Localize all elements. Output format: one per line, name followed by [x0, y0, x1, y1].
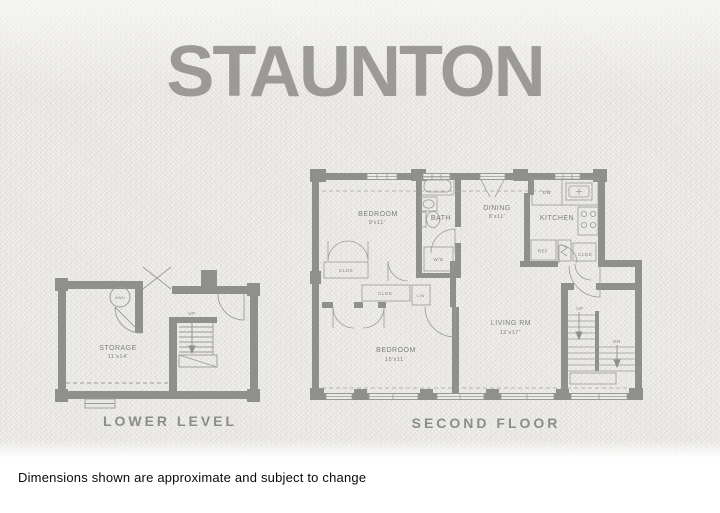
bedroom1-label: BEDROOM	[358, 211, 398, 218]
dining-label: DINING	[483, 205, 511, 212]
paper-fade	[0, 440, 720, 458]
hot-water-heater-symbol: HWH	[110, 287, 130, 307]
burner-symbol	[581, 222, 586, 227]
second-floor-caption: SECOND FLOOR	[316, 415, 656, 431]
living-room-label: LIVING RM	[491, 320, 531, 327]
second-floor-plan: BEDROOM 9'x11' BATH W/D DINING 8'x11' KI…	[310, 165, 650, 410]
living-room-dims: 12'x17'	[500, 330, 521, 336]
bedroom2-dims: 15'x11'	[385, 357, 405, 363]
dishwasher-label: DW	[543, 190, 552, 195]
disclaimer-text: Dimensions shown are approximate and sub…	[18, 470, 366, 485]
refrigerator-label: REF	[538, 249, 549, 254]
sf-up-label: UP	[576, 306, 583, 311]
hall-closet2-label: CLOS	[378, 291, 392, 296]
floor-plan-sheet: STAUNTON	[0, 0, 720, 513]
storage-room-dims: 11'x14'	[108, 354, 128, 360]
burner-symbol	[590, 211, 595, 216]
washer-dryer-label: W/D	[433, 257, 443, 262]
bath-label: BATH	[431, 215, 451, 222]
up-arrow	[189, 318, 195, 353]
bedroom1-dims: 9'x11'	[369, 220, 386, 226]
burner-symbol	[581, 211, 586, 216]
plan-title: STAUNTON	[0, 36, 715, 108]
range-counter-symbol	[578, 207, 598, 235]
door-swings	[328, 229, 600, 337]
sf-dn-label: DN	[613, 339, 621, 344]
dining-dims: 8'x11'	[489, 214, 506, 220]
sink-symbol	[420, 197, 437, 211]
ll-up-label: UP	[188, 311, 195, 316]
ll-walls	[55, 270, 260, 402]
window-symbols	[326, 174, 627, 400]
entry-closet-label: CLOS	[578, 252, 592, 257]
lower-level-caption: LOWER LEVEL	[75, 413, 265, 429]
hall-closet1-label: CLOS	[339, 268, 353, 273]
kitchen-label: KITCHEN	[540, 215, 574, 222]
storage-room-label: STORAGE	[99, 345, 137, 352]
lower-level-plan: HWH STORAGE 11'x14' UP	[55, 265, 270, 417]
burner-symbol	[590, 222, 595, 227]
stairs-symbol	[568, 311, 635, 384]
linen-closet-label: LIN	[417, 294, 424, 298]
bedroom2-label: BEDROOM	[376, 347, 416, 354]
hwh-label: HWH	[115, 296, 126, 300]
broom-closet-symbol	[558, 240, 571, 261]
